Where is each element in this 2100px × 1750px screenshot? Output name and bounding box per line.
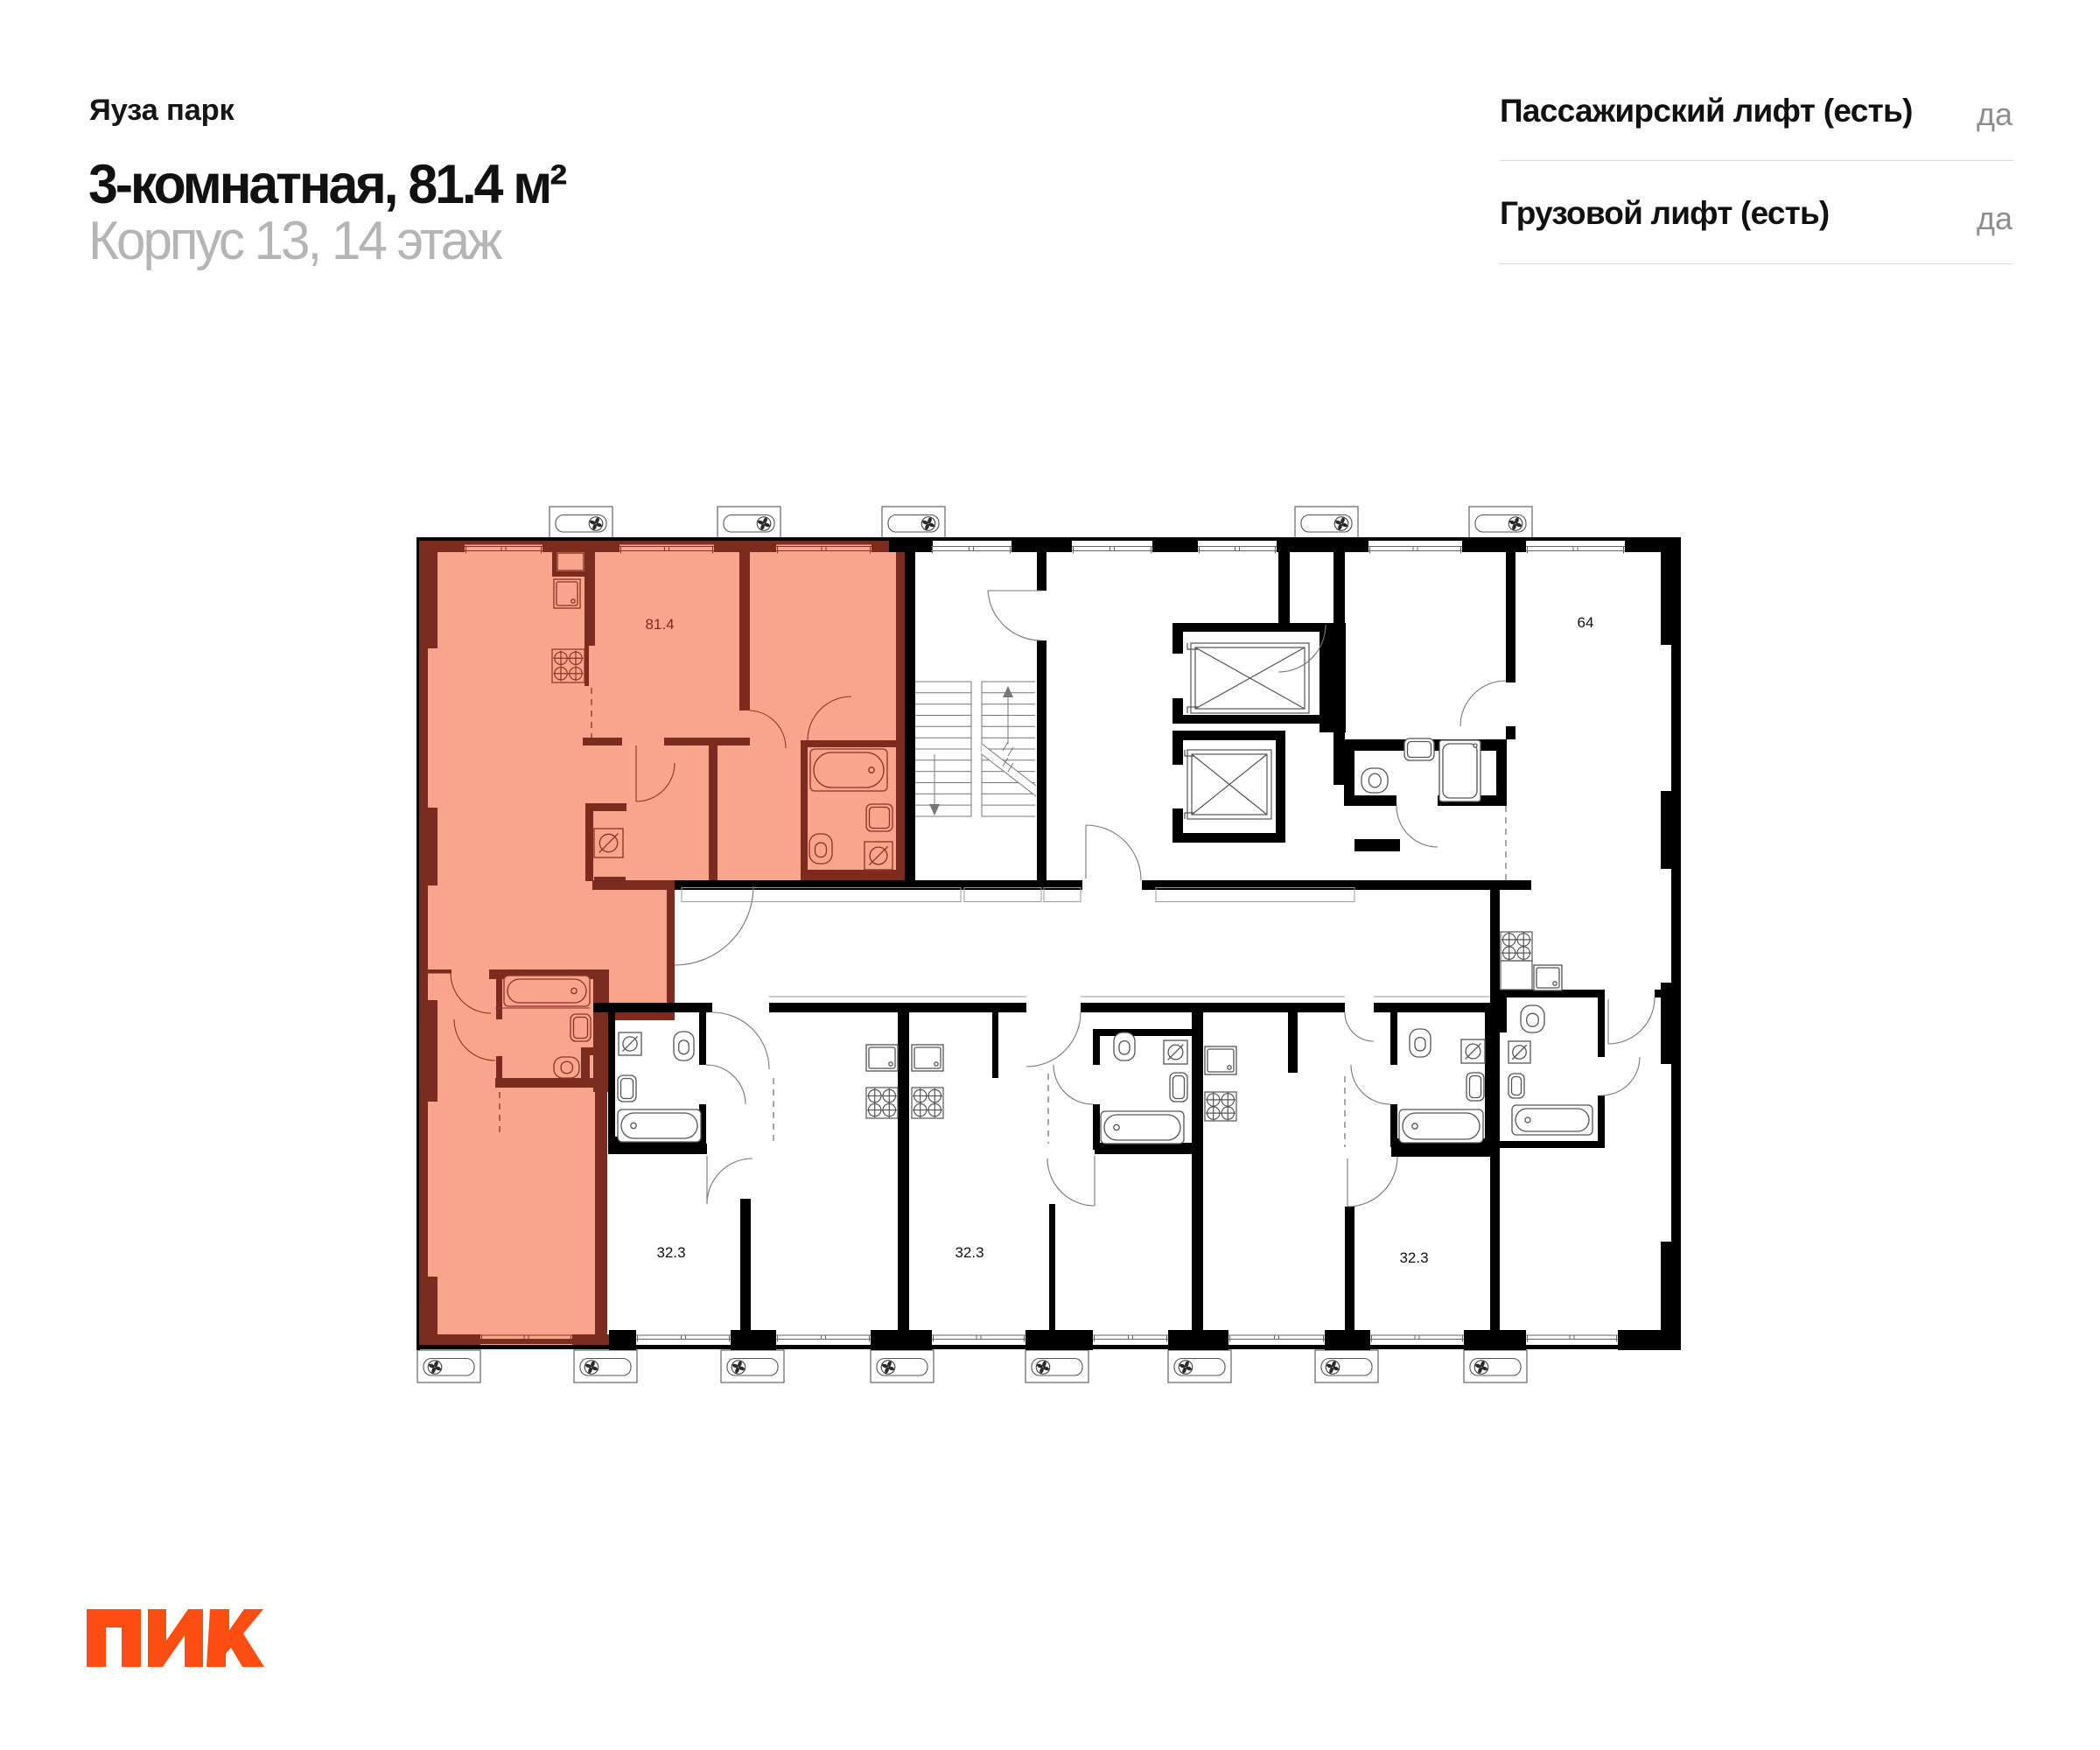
svg-text:32.3: 32.3 bbox=[656, 1244, 685, 1261]
svg-text:32.3: 32.3 bbox=[1399, 1249, 1428, 1266]
svg-text:64: 64 bbox=[1578, 614, 1594, 631]
svg-text:32.3: 32.3 bbox=[955, 1244, 983, 1261]
svg-text:81.4: 81.4 bbox=[645, 616, 674, 633]
